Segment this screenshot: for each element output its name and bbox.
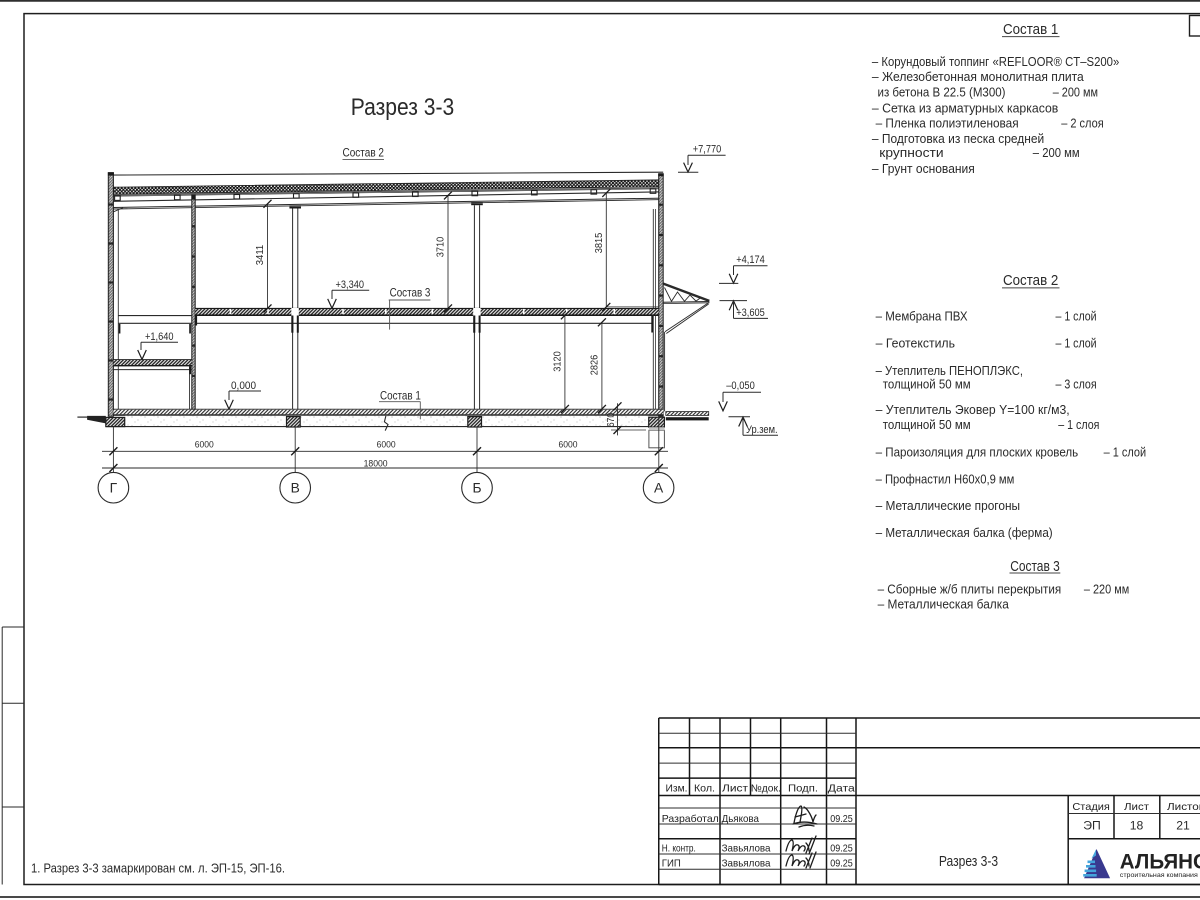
svg-text:09.25: 09.25 bbox=[830, 814, 853, 825]
svg-text:– 1 слой: – 1 слой bbox=[1104, 444, 1147, 459]
svg-text:09.25: 09.25 bbox=[830, 843, 853, 854]
svg-text:А: А bbox=[654, 481, 664, 496]
svg-text:– Металлические прогоны: – Металлические прогоны bbox=[876, 498, 1021, 513]
svg-text:Б: Б bbox=[472, 481, 481, 496]
svg-text:– Подготовка из песка средней: – Подготовка из песка средней bbox=[872, 131, 1044, 146]
svg-text:Разрез 3-3: Разрез 3-3 bbox=[351, 94, 454, 121]
svg-text:21: 21 bbox=[1176, 819, 1190, 833]
svg-text:Н. контр.: Н. контр. bbox=[662, 843, 696, 854]
svg-text:– Профнастил Н60х0,9 мм: – Профнастил Н60х0,9 мм bbox=[876, 471, 1015, 486]
svg-text:– 2 слоя: – 2 слоя bbox=[1061, 116, 1104, 131]
svg-text:Состав 3: Состав 3 bbox=[1010, 558, 1060, 575]
svg-text:Дата: Дата bbox=[828, 783, 855, 794]
svg-text:толщиной 50 мм: толщиной 50 мм bbox=[883, 377, 971, 392]
svg-text:из бетона В 22.5 (М300): из бетона В 22.5 (М300) bbox=[878, 84, 1006, 99]
svg-text:1. Разрез 3-3 замаркирован см.: 1. Разрез 3-3 замаркирован см. л. ЭП-15,… bbox=[31, 862, 285, 876]
svg-text:– Мембрана ПВХ: – Мембрана ПВХ bbox=[876, 309, 968, 324]
svg-text:– Металлическая балка: – Металлическая балка bbox=[878, 596, 1010, 611]
svg-text:0,000: 0,000 bbox=[231, 380, 256, 392]
svg-text:Дьякова: Дьякова bbox=[722, 814, 760, 825]
svg-text:Лист: Лист bbox=[1124, 802, 1149, 813]
svg-text:– Металлическая балка (ферма): – Металлическая балка (ферма) bbox=[876, 525, 1053, 540]
svg-text:Ур.зем.: Ур.зем. bbox=[746, 424, 778, 436]
svg-text:6000: 6000 bbox=[559, 440, 578, 451]
svg-text:6000: 6000 bbox=[377, 440, 396, 451]
svg-text:крупности: крупности bbox=[879, 145, 943, 160]
svg-text:– Железобетонная монолитная п: – Железобетонная монолитная плита bbox=[872, 69, 1085, 84]
svg-text:– 1 слой: – 1 слой bbox=[1056, 309, 1097, 324]
svg-text:Состав 3: Состав 3 bbox=[390, 287, 431, 300]
svg-text:6000: 6000 bbox=[195, 440, 214, 451]
svg-text:– Сетка из арматурных каркасов: – Сетка из арматурных каркасов bbox=[872, 101, 1058, 116]
svg-text:– 200 мм: – 200 мм bbox=[1053, 84, 1098, 99]
svg-text:– 1 слой: – 1 слой bbox=[1056, 335, 1097, 350]
svg-text:Кол.: Кол. bbox=[694, 783, 715, 794]
svg-text:2826: 2826 bbox=[588, 355, 600, 376]
svg-text:–0,050: –0,050 bbox=[726, 380, 755, 392]
svg-text:Лист: Лист bbox=[722, 783, 748, 794]
svg-text:18000: 18000 bbox=[364, 458, 388, 469]
svg-text:670: 670 bbox=[606, 412, 617, 427]
svg-text:АЛЬЯНС: АЛЬЯНС bbox=[1120, 849, 1200, 873]
svg-text:– 200 мм: – 200 мм bbox=[1033, 145, 1080, 160]
svg-text:ЭП: ЭП bbox=[1083, 819, 1101, 833]
svg-text:3815: 3815 bbox=[593, 233, 605, 254]
svg-text:В: В bbox=[291, 481, 300, 496]
svg-text:строительная компания: строительная компания bbox=[1120, 872, 1198, 879]
svg-text:Состав 1: Состав 1 bbox=[1003, 21, 1058, 38]
svg-text:Состав 2: Состав 2 bbox=[1003, 272, 1058, 289]
svg-text:Состав 1: Состав 1 bbox=[380, 389, 421, 402]
svg-text:– Пароизоляция для плоских кро: – Пароизоляция для плоских кровель bbox=[876, 444, 1079, 459]
svg-text:Подп.: Подп. bbox=[788, 783, 818, 794]
svg-text:ГИП: ГИП bbox=[662, 858, 681, 869]
svg-text:Завьялова: Завьялова bbox=[722, 843, 771, 854]
svg-text:– Грунт основания: – Грунт основания bbox=[872, 161, 975, 176]
svg-text:3120: 3120 bbox=[551, 351, 563, 372]
svg-text:– 1 слоя: – 1 слоя bbox=[1058, 417, 1099, 432]
svg-text:– Корундовый топпинг «REFLOOR®: – Корундовый топпинг «REFLOOR® CT–S200» bbox=[872, 54, 1119, 69]
svg-text:Завьялова: Завьялова bbox=[722, 858, 771, 869]
svg-text:Разрез 3-3: Разрез 3-3 bbox=[939, 853, 998, 870]
svg-text:– Пленка полиэтиленовая: – Пленка полиэтиленовая bbox=[876, 116, 1019, 131]
svg-text:09.25: 09.25 bbox=[830, 858, 853, 869]
svg-text:+3,605: +3,605 bbox=[736, 307, 765, 319]
svg-text:3710: 3710 bbox=[435, 237, 447, 258]
svg-text:+3,340: +3,340 bbox=[336, 279, 365, 291]
svg-text:– Сборные ж/б плиты перекрытия: – Сборные ж/б плиты перекрытия bbox=[878, 582, 1062, 597]
svg-text:– 3 слоя: – 3 слоя bbox=[1056, 377, 1097, 392]
svg-text:Листов: Листов bbox=[1167, 802, 1200, 813]
svg-text:Стадия: Стадия bbox=[1072, 802, 1110, 813]
svg-text:+7,770: +7,770 bbox=[693, 143, 722, 155]
svg-text:№док.: №док. bbox=[751, 783, 781, 794]
svg-text:+4,174: +4,174 bbox=[736, 254, 765, 266]
svg-text:– 220 мм: – 220 мм bbox=[1084, 582, 1129, 597]
svg-text:Состав 2: Состав 2 bbox=[343, 147, 385, 160]
svg-text:Изм.: Изм. bbox=[666, 783, 688, 794]
svg-text:Разработал: Разработал bbox=[662, 813, 719, 825]
svg-text:– Геотекстиль: – Геотекстиль bbox=[876, 335, 956, 350]
svg-text:Г: Г bbox=[110, 481, 118, 496]
svg-text:толщиной 50 мм: толщиной 50 мм bbox=[883, 417, 971, 432]
svg-text:3411: 3411 bbox=[254, 245, 266, 266]
svg-text:+1,640: +1,640 bbox=[145, 331, 174, 343]
svg-text:18: 18 bbox=[1130, 819, 1144, 833]
svg-text:– Утеплитель Эковер Y=100 кг/м: – Утеплитель Эковер Y=100 кг/м3, bbox=[876, 402, 1070, 417]
